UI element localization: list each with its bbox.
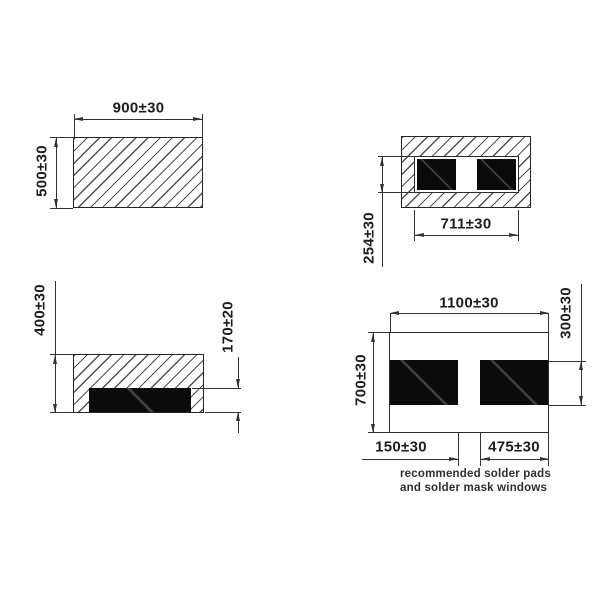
dimension-line	[373, 333, 374, 433]
dimension-label-pad-width: 475±30	[488, 439, 540, 456]
dimension-line	[480, 459, 549, 460]
dimension-label-pad-height: 300±30	[558, 287, 575, 339]
extension-line	[458, 433, 459, 466]
dimension-line	[390, 313, 549, 314]
arrowhead	[449, 457, 458, 461]
figure-caption: recommended solder pads and solder mask …	[400, 468, 551, 495]
solder-pad-left	[390, 360, 458, 405]
arrowhead	[540, 457, 549, 461]
dimension-label-pad-gap: 150±30	[375, 439, 427, 456]
extension-line	[390, 313, 391, 332]
dimension-drawing: 900±30 500±30 254±30 711±30	[0, 0, 600, 600]
extension-line	[480, 433, 481, 466]
dimension-line	[581, 284, 582, 405]
dimension-line	[362, 459, 458, 460]
arrowhead	[579, 361, 583, 370]
caption-line-1: recommended solder pads	[400, 468, 551, 482]
extension-line	[548, 313, 549, 332]
arrowhead	[371, 333, 375, 342]
arrowhead	[579, 396, 583, 405]
dimension-label-overall-width: 1100±30	[439, 294, 499, 311]
extension-line	[549, 405, 586, 406]
arrowhead	[481, 457, 490, 461]
extension-line	[548, 433, 549, 466]
arrowhead	[371, 424, 375, 433]
solder-pad-right	[480, 360, 548, 405]
solder-pad-layout-figure: 1100±30 700±30 300±30 150±30 475±30 reco…	[0, 0, 600, 600]
dimension-label-overall-height: 700±30	[353, 354, 370, 406]
arrowhead	[390, 311, 399, 315]
arrowhead	[540, 311, 549, 315]
caption-line-2: and solder mask windows	[400, 482, 551, 496]
